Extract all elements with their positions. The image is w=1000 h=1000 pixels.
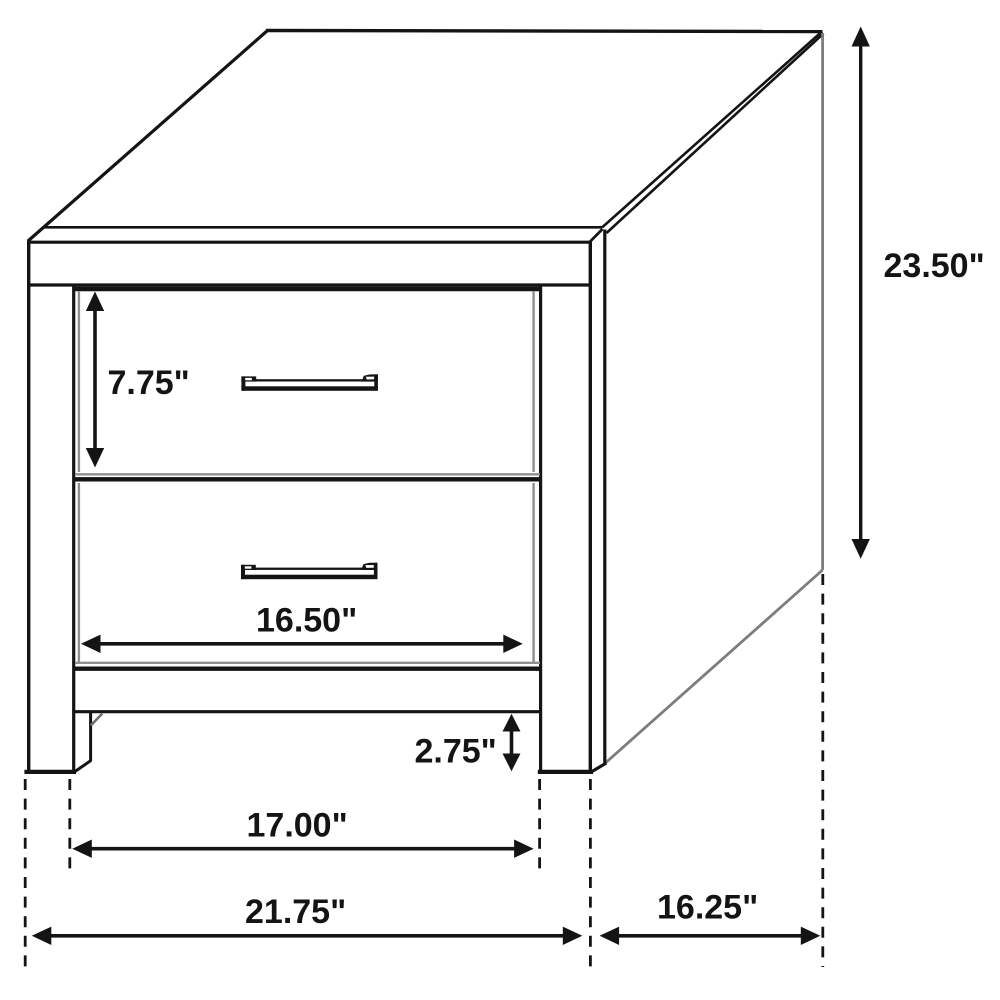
svg-text:16.25": 16.25" bbox=[657, 889, 758, 927]
svg-text:2.75": 2.75" bbox=[415, 733, 497, 771]
svg-text:23.50": 23.50" bbox=[884, 247, 985, 285]
svg-text:16.50": 16.50" bbox=[256, 602, 357, 640]
svg-text:17.00": 17.00" bbox=[247, 807, 348, 845]
svg-text:7.75": 7.75" bbox=[108, 364, 190, 402]
svg-text:21.75": 21.75" bbox=[245, 893, 346, 931]
